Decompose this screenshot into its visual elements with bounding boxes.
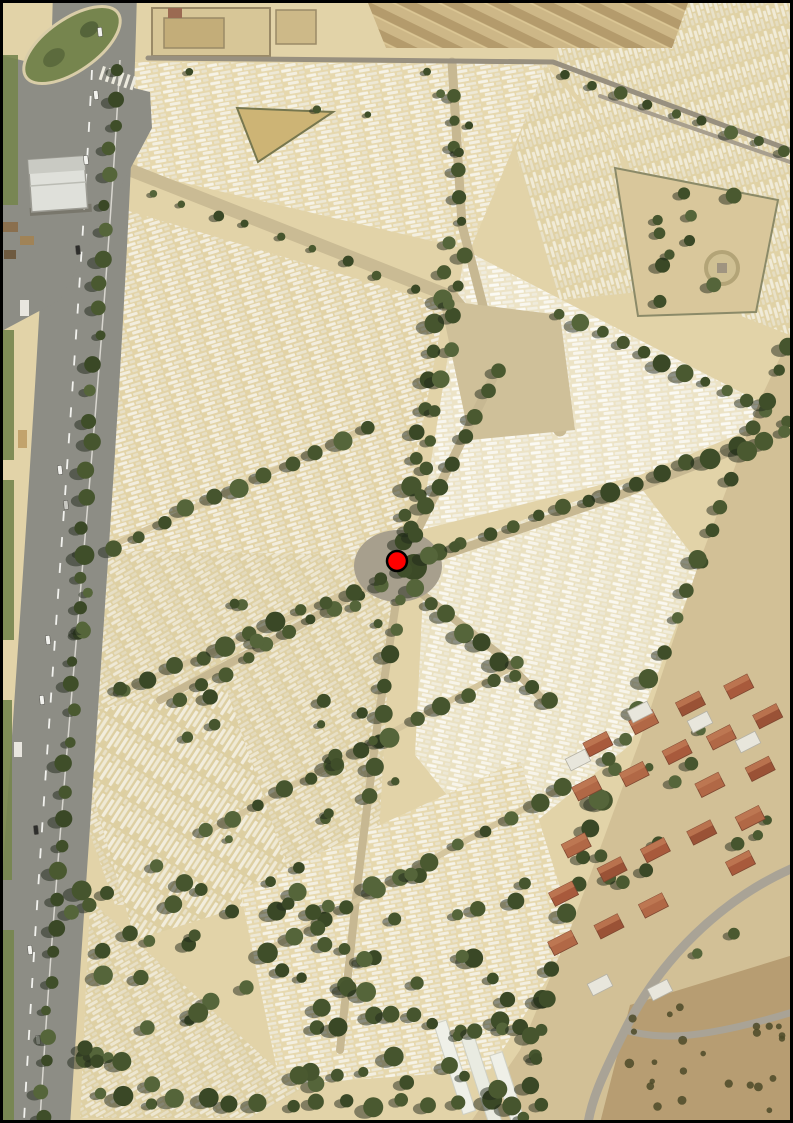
tree-icon	[188, 1003, 208, 1023]
bush-icon	[650, 1079, 655, 1084]
car-body	[39, 695, 44, 704]
tree-icon	[65, 737, 76, 748]
tree-icon	[255, 467, 271, 483]
tree-icon	[511, 656, 524, 669]
tree-icon	[602, 752, 616, 766]
tree-icon	[459, 429, 474, 444]
tree-icon	[309, 245, 317, 253]
tree-icon	[164, 895, 182, 913]
tree-icon	[95, 1088, 107, 1100]
tree-icon	[679, 583, 694, 598]
tree-icon	[265, 612, 285, 632]
tree-icon	[437, 265, 451, 279]
tree-icon	[113, 682, 127, 696]
tree-icon	[724, 126, 738, 140]
tree-icon	[150, 859, 163, 872]
tree-icon	[195, 678, 208, 691]
tree-icon	[753, 830, 763, 840]
tree-icon	[361, 421, 375, 435]
tree-icon	[778, 145, 790, 157]
tree-icon	[465, 121, 473, 129]
tree-icon	[487, 973, 499, 985]
tree-icon	[368, 736, 377, 745]
tree-icon	[533, 510, 544, 521]
tree-icon	[531, 794, 549, 812]
tree-icon	[81, 414, 96, 429]
tree-icon	[692, 948, 702, 958]
tree-icon	[72, 880, 92, 900]
car	[33, 825, 38, 834]
tree-icon	[68, 703, 81, 716]
tree-icon	[84, 384, 96, 396]
bush-icon	[776, 1023, 782, 1029]
tree-icon	[452, 839, 464, 851]
tree-icon	[488, 1080, 507, 1099]
tree-icon	[241, 220, 249, 228]
car-body	[93, 90, 98, 99]
tree-icon	[654, 227, 666, 239]
tree-icon	[502, 1096, 521, 1115]
tree-icon	[728, 928, 740, 940]
tree-icon	[423, 68, 431, 76]
garden-center-structure	[717, 263, 727, 273]
tree-icon	[639, 863, 653, 877]
tree-icon	[74, 521, 87, 534]
tree-icon	[487, 674, 500, 687]
tree-icon	[473, 633, 491, 651]
tree-icon	[365, 111, 372, 118]
car-body	[63, 500, 68, 509]
car	[27, 945, 32, 954]
car	[75, 245, 80, 254]
tree-icon	[282, 897, 294, 909]
tree-icon	[287, 1100, 299, 1112]
tree-icon	[754, 432, 773, 451]
tree-icon	[481, 383, 496, 398]
building	[276, 10, 316, 44]
tree-icon	[173, 693, 187, 707]
car-body	[45, 635, 50, 644]
tree-icon	[451, 163, 466, 178]
tree-icon	[409, 424, 425, 440]
tree-icon	[454, 148, 464, 158]
tree-icon	[265, 876, 276, 887]
tree-icon	[664, 249, 674, 259]
tree-icon	[317, 694, 331, 708]
tree-icon	[672, 612, 684, 624]
tree-icon	[437, 605, 455, 623]
tree-icon	[436, 89, 445, 98]
tree-icon	[457, 247, 473, 263]
tree-icon	[182, 732, 193, 743]
tree-icon	[225, 904, 239, 918]
tree-icon	[470, 901, 485, 916]
tree-icon	[404, 868, 417, 881]
tree-icon	[310, 921, 325, 936]
car-body	[97, 27, 102, 36]
tree-icon	[429, 405, 441, 417]
tree-icon	[340, 1094, 353, 1107]
tree-icon	[108, 92, 124, 108]
tree-icon	[176, 874, 193, 891]
tree-icon	[239, 980, 253, 994]
tree-icon	[381, 645, 399, 663]
tree-icon	[406, 579, 424, 597]
tree-icon	[449, 116, 459, 126]
tree-icon	[56, 840, 68, 852]
tree-icon	[379, 728, 399, 748]
tree-icon	[452, 909, 463, 920]
tree-icon	[91, 276, 106, 291]
car-body	[33, 825, 38, 834]
bush-icon	[700, 1051, 706, 1057]
tree-icon	[305, 773, 317, 785]
tree-icon	[150, 190, 158, 198]
tree-icon	[317, 720, 325, 728]
tree-icon	[684, 235, 695, 246]
tree-icon	[202, 689, 217, 704]
tree-icon	[444, 342, 459, 357]
tree-icon	[177, 499, 194, 516]
tree-icon	[76, 622, 89, 635]
tree-icon	[146, 1098, 157, 1109]
tree-icon	[102, 167, 117, 182]
tree-icon	[358, 1067, 368, 1077]
tree-icon	[554, 309, 565, 320]
tree-icon	[399, 1075, 414, 1090]
tree-icon	[282, 625, 296, 639]
long-buildings-north	[368, 3, 688, 48]
tree-icon	[726, 188, 742, 204]
tree-icon	[74, 601, 87, 614]
bush-icon	[766, 1023, 773, 1030]
tree-icon	[705, 523, 719, 537]
tree-icon	[105, 540, 122, 557]
screenshot-frame	[0, 0, 793, 1123]
tree-icon	[307, 445, 322, 460]
bush-icon	[631, 1029, 637, 1035]
tree-icon	[63, 676, 79, 692]
tree-icon	[449, 541, 460, 552]
car-body	[75, 245, 80, 254]
tree-icon	[257, 943, 278, 964]
tree-icon	[331, 758, 343, 770]
tree-icon	[411, 284, 420, 293]
tree-icon	[102, 142, 116, 156]
tree-icon	[95, 251, 112, 268]
tree-icon	[629, 477, 644, 492]
tree-icon	[489, 652, 508, 671]
tree-icon	[616, 875, 630, 889]
tree-icon	[286, 457, 301, 472]
tree-icon	[64, 905, 79, 920]
tree-icon	[320, 596, 333, 609]
tree-icon	[363, 876, 382, 895]
car	[97, 27, 102, 36]
bush-icon	[625, 1059, 635, 1069]
tree-icon	[484, 527, 497, 540]
tree-icon	[617, 336, 630, 349]
tree-icon	[657, 645, 671, 659]
tree-icon	[459, 1071, 470, 1082]
tree-icon	[678, 187, 690, 199]
tree-icon	[185, 68, 193, 76]
tree-icon	[445, 457, 460, 472]
car-body	[57, 465, 62, 474]
tree-icon	[343, 256, 354, 267]
tree-icon	[363, 1097, 383, 1117]
bush-icon	[753, 1029, 761, 1037]
tree-icon	[525, 680, 539, 694]
tree-icon	[220, 1096, 237, 1113]
tree-icon	[778, 425, 790, 437]
tree-icon	[672, 109, 681, 118]
tree-icon	[83, 588, 93, 598]
tree-icon	[417, 497, 434, 514]
tree-icon	[166, 657, 183, 674]
tree-icon	[597, 326, 609, 338]
car	[83, 155, 88, 164]
tree-icon	[293, 862, 305, 874]
tree-icon	[383, 1006, 400, 1023]
tree-icon	[445, 308, 461, 324]
tree-icon	[46, 976, 59, 989]
tree-icon	[467, 1023, 482, 1038]
tree-icon	[443, 236, 456, 249]
tree-icon	[219, 667, 234, 682]
tree-icon	[195, 883, 208, 896]
tree-icon	[77, 1040, 92, 1055]
tree-icon	[509, 670, 521, 682]
tree-icon	[41, 1006, 51, 1016]
building-courtyard	[164, 18, 224, 48]
tree-icon	[356, 982, 376, 1002]
tree-icon	[95, 943, 111, 959]
tree-icon	[100, 886, 114, 900]
tree-icon	[377, 679, 391, 693]
tree-icon	[133, 970, 148, 985]
tree-icon	[457, 217, 466, 226]
tree-icon	[67, 656, 77, 666]
tree-icon	[653, 465, 671, 483]
tree-icon	[587, 81, 597, 91]
tree-icon	[420, 1097, 436, 1113]
tree-icon	[560, 70, 570, 80]
tree-icon	[539, 991, 556, 1008]
tree-icon	[395, 595, 406, 606]
tree-icon	[366, 758, 384, 776]
bush-icon	[652, 1059, 658, 1065]
tree-icon	[77, 462, 94, 479]
tree-icon	[313, 999, 331, 1017]
tree-icon	[638, 346, 651, 359]
tree-icon	[372, 271, 382, 281]
tree-icon	[713, 500, 727, 514]
tree-icon	[394, 1093, 408, 1107]
tree-icon	[331, 1069, 344, 1082]
tree-icon	[452, 190, 466, 204]
tree-icon	[642, 100, 652, 110]
bush-icon	[629, 1014, 637, 1022]
tree-icon	[653, 354, 671, 372]
tree-icon	[541, 692, 558, 709]
tree-icon	[507, 893, 524, 910]
tree-icon	[554, 778, 572, 796]
tree-icon	[313, 105, 321, 113]
tree-icon	[209, 719, 221, 731]
bush-icon	[678, 1036, 687, 1045]
tree-icon	[199, 823, 213, 837]
tree-icon	[41, 1055, 53, 1067]
tree-icon	[507, 520, 520, 533]
tree-icon	[55, 810, 72, 827]
tree-icon	[328, 1018, 347, 1037]
tree-icon	[350, 600, 362, 612]
tree-icon	[759, 393, 776, 410]
car	[57, 465, 62, 474]
tree-icon	[652, 215, 662, 225]
tree-icon	[557, 904, 576, 923]
tree-icon	[688, 550, 706, 568]
tree-icon	[491, 363, 506, 378]
tree-icon	[594, 849, 607, 862]
tree-icon	[178, 200, 185, 207]
tree-icon	[456, 950, 469, 963]
bush-icon	[667, 1011, 673, 1017]
tree-icon	[112, 1052, 131, 1071]
tree-icon	[110, 120, 122, 132]
tree-icon	[33, 1084, 48, 1099]
tree-icon	[480, 826, 492, 838]
tree-icon	[189, 929, 201, 941]
tree-icon	[685, 757, 699, 771]
tree-icon	[84, 433, 101, 450]
tree-icon	[139, 672, 156, 689]
bush-icon	[678, 1096, 687, 1105]
tree-icon	[461, 688, 476, 703]
tree-icon	[133, 531, 145, 543]
tree-icon	[78, 489, 95, 506]
tree-icon	[441, 1057, 458, 1074]
tree-icon	[653, 295, 666, 308]
tree-icon	[322, 900, 335, 913]
bush-icon	[747, 1082, 754, 1089]
tree-icon	[59, 786, 72, 799]
tree-icon	[356, 707, 367, 718]
tree-icon	[93, 965, 112, 984]
tree-icon	[143, 935, 155, 947]
tree-icon	[230, 599, 240, 609]
tree-icon	[451, 1095, 465, 1109]
bush-icon	[770, 1075, 777, 1082]
tree-icon	[362, 788, 378, 804]
tree-icon	[706, 277, 721, 292]
tree-icon	[82, 898, 96, 912]
tree-icon	[250, 634, 265, 649]
map-image[interactable]	[0, 0, 793, 1123]
tree-icon	[407, 1007, 422, 1022]
bush-icon	[779, 1032, 786, 1039]
tree-icon	[754, 136, 764, 146]
tree-icon	[339, 900, 353, 914]
tree-icon	[374, 572, 387, 585]
tree-icon	[317, 937, 332, 952]
tree-icon	[504, 811, 518, 825]
tree-icon	[432, 479, 449, 496]
bush-icon	[653, 1102, 662, 1111]
car	[93, 90, 98, 99]
tree-icon	[224, 811, 241, 828]
tree-icon	[425, 597, 438, 610]
tree-icon	[737, 441, 757, 461]
tree-icon	[213, 211, 224, 222]
tree-icon	[111, 64, 123, 76]
tree-icon	[535, 1098, 549, 1112]
tree-icon	[522, 1027, 539, 1044]
white-roof-building	[26, 156, 92, 216]
tree-icon	[600, 482, 620, 502]
bush-icon	[680, 1067, 687, 1074]
car-body	[27, 945, 32, 954]
tree-icon	[669, 775, 682, 788]
tree-icon	[248, 1094, 266, 1112]
car	[45, 635, 50, 644]
tree-icon	[84, 356, 101, 373]
tree-icon	[696, 116, 706, 126]
tree-icon	[614, 86, 628, 100]
tree-icon	[99, 223, 113, 237]
tree-icon	[731, 837, 745, 851]
tree-icon	[639, 669, 659, 689]
tree-icon	[40, 1029, 56, 1045]
tree-icon	[425, 435, 436, 446]
tree-icon	[295, 604, 306, 615]
tree-icon	[308, 1094, 324, 1110]
bush-icon	[767, 1107, 773, 1113]
tree-icon	[252, 799, 264, 811]
bush-icon	[676, 1003, 684, 1011]
tree-icon	[277, 233, 285, 241]
tree-icon	[96, 330, 106, 340]
tree-icon	[391, 623, 403, 635]
tree-icon	[305, 904, 321, 920]
tree-icon	[229, 479, 248, 498]
building-red-roof	[168, 8, 182, 18]
tree-icon	[746, 420, 761, 435]
tree-icon	[522, 1077, 539, 1094]
car	[63, 500, 68, 509]
tree-icon	[454, 623, 474, 643]
tree-icon	[555, 499, 571, 515]
tree-icon	[500, 992, 515, 1007]
tree-icon	[408, 527, 423, 542]
location-marker[interactable]	[387, 551, 407, 571]
tree-icon	[388, 912, 401, 925]
tree-icon	[324, 808, 334, 818]
tree-icon	[724, 472, 739, 487]
tree-icon	[276, 780, 293, 797]
tree-icon	[410, 452, 423, 465]
tree-icon	[572, 314, 590, 332]
tree-icon	[685, 210, 697, 222]
tree-icon	[74, 572, 86, 584]
tree-icon	[374, 619, 383, 628]
tree-icon	[391, 777, 399, 785]
tree-icon	[49, 862, 67, 880]
tree-icon	[700, 448, 721, 469]
tree-icon	[165, 1089, 184, 1108]
tree-icon	[443, 298, 455, 310]
